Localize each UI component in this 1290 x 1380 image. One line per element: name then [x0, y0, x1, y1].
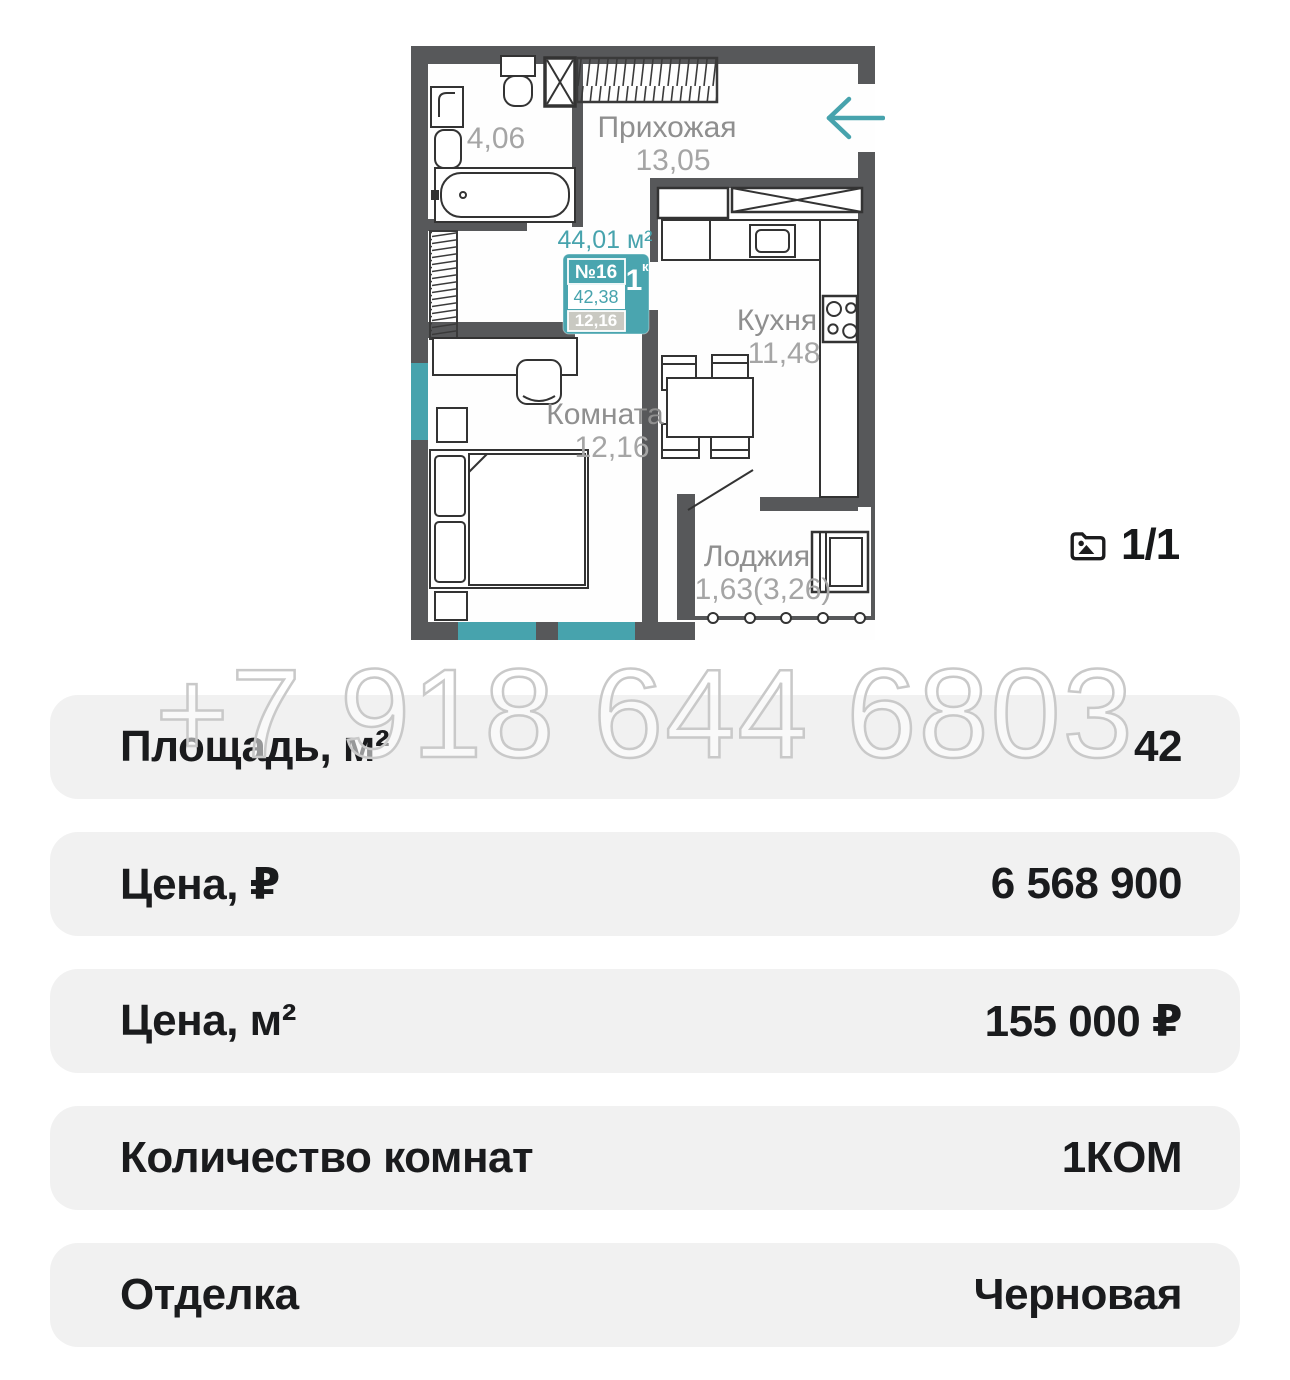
detail-value: 42: [1134, 722, 1182, 772]
bench-icon: [435, 592, 467, 620]
detail-label: Отделка: [120, 1270, 299, 1320]
detail-row: Площадь, м²42: [50, 695, 1240, 799]
bed-icon: [430, 450, 588, 588]
room-label-kitchen: Кухня: [737, 304, 817, 337]
detail-value: Черновая: [974, 1270, 1182, 1320]
room-label-hallway: Прихожая: [597, 111, 736, 144]
image-folder-icon: [1068, 527, 1108, 563]
room-area-kitchen: 11,48: [748, 337, 821, 370]
details-list: Площадь, м²42Цена, ₽6 568 900Цена, м²155…: [50, 695, 1240, 1380]
room-area-loggia: 1,63(3,26): [695, 573, 832, 606]
room-label-bathroom: 4,06: [467, 122, 525, 155]
unit-total-area: 44,01 м²: [557, 226, 652, 254]
detail-row: Количество комнат1КОМ: [50, 1106, 1240, 1210]
wc-cistern-icon: [501, 56, 535, 76]
radiator-icon: [430, 231, 457, 339]
detail-value: 6 568 900: [991, 859, 1182, 909]
nightstand-icon: [437, 408, 467, 442]
bathtub-icon: [432, 168, 575, 222]
fridge-icon: [658, 188, 728, 218]
room-area-room: 12,16: [574, 431, 649, 464]
detail-label: Цена, м²: [120, 996, 296, 1046]
unit-rooms-count: 1: [626, 264, 643, 297]
room-label-loggia: Лоджия: [704, 540, 810, 573]
detail-label: Цена, ₽: [120, 859, 280, 910]
detail-row: Цена, м²155 000 ₽: [50, 969, 1240, 1073]
unit-rooms-suffix: к: [642, 259, 649, 274]
kitchen-counter-right: [820, 220, 858, 497]
detail-value: 1КОМ: [1062, 1133, 1182, 1183]
unit-info-card: 44,01 м² №16 1 к 42,38 12,16: [557, 226, 652, 334]
stove-icon: [823, 296, 857, 342]
kitchen-cabinet-icon: [732, 188, 862, 212]
unit-room-area: 12,16: [575, 311, 618, 330]
room-label-room: Комната: [546, 398, 664, 431]
detail-row: Цена, ₽6 568 900: [50, 832, 1240, 936]
wardrobe-icon: [577, 58, 717, 102]
floor-plan-image[interactable]: 44,01 м² №16 1 к 42,38 12,16 4,06 Прихож…: [405, 42, 885, 642]
unit-living-area: 42,38: [573, 287, 618, 307]
detail-value: 155 000 ₽: [985, 996, 1182, 1047]
toilet-icon: [435, 130, 461, 168]
gallery-counter[interactable]: 1/1: [1068, 520, 1179, 570]
kitchen-counter-top: [662, 220, 820, 260]
detail-row: ОтделкаЧерновая: [50, 1243, 1240, 1347]
room-area-hallway: 13,05: [635, 144, 710, 177]
detail-label: Площадь, м²: [120, 722, 389, 772]
listing-page: 44,01 м² №16 1 к 42,38 12,16 4,06 Прихож…: [0, 0, 1290, 1380]
washing-machine-icon: [545, 58, 575, 106]
gallery-counter-text: 1/1: [1121, 520, 1179, 570]
unit-number: №16: [575, 262, 617, 283]
detail-label: Количество комнат: [120, 1133, 533, 1183]
wc-bowl-icon: [504, 76, 532, 106]
